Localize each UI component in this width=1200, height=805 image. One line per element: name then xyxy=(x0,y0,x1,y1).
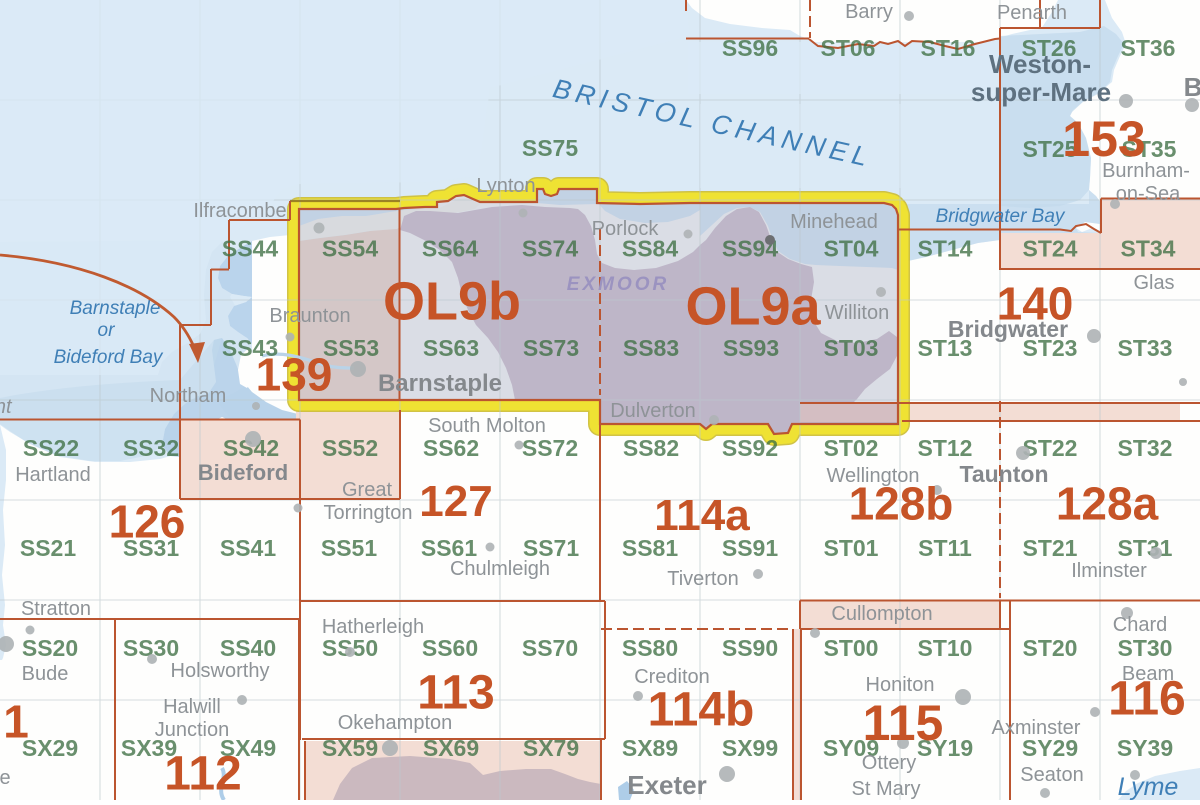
svg-text:Dulverton: Dulverton xyxy=(610,400,696,422)
svg-text:South Molton: South Molton xyxy=(428,415,546,437)
svg-text:SX69: SX69 xyxy=(423,735,479,761)
svg-text:SS64: SS64 xyxy=(422,236,478,262)
svg-text:ST24: ST24 xyxy=(1023,236,1078,262)
svg-text:140: 140 xyxy=(997,278,1074,330)
svg-text:Exeter: Exeter xyxy=(627,770,707,800)
svg-text:SS54: SS54 xyxy=(322,236,378,262)
svg-text:Torrington: Torrington xyxy=(324,502,413,524)
svg-text:SX99: SX99 xyxy=(722,735,778,761)
svg-text:Honiton: Honiton xyxy=(866,674,935,696)
svg-text:SY39: SY39 xyxy=(1117,735,1173,761)
svg-text:SS32: SS32 xyxy=(123,435,179,461)
svg-text:Bideford Bay: Bideford Bay xyxy=(54,347,164,368)
svg-text:Barry: Barry xyxy=(845,1,893,23)
svg-text:SS82: SS82 xyxy=(623,435,679,461)
svg-text:127: 127 xyxy=(419,477,492,526)
svg-text:ST33: ST33 xyxy=(1118,335,1173,361)
svg-text:Penarth: Penarth xyxy=(997,2,1067,24)
svg-text:114a: 114a xyxy=(654,491,750,540)
svg-text:Ottery: Ottery xyxy=(862,752,916,774)
svg-text:SX29: SX29 xyxy=(22,735,78,761)
svg-text:or: or xyxy=(98,320,116,341)
svg-text:SS41: SS41 xyxy=(220,535,276,561)
svg-text:Great: Great xyxy=(342,479,392,501)
svg-text:112: 112 xyxy=(164,747,241,800)
svg-text:ST31: ST31 xyxy=(1118,535,1173,561)
svg-text:Seaton: Seaton xyxy=(1020,764,1083,786)
svg-text:Axminster: Axminster xyxy=(992,717,1081,739)
svg-text:super-Mare: super-Mare xyxy=(971,77,1111,107)
svg-text:Porlock: Porlock xyxy=(592,218,660,240)
svg-text:OL9a: OL9a xyxy=(685,276,821,336)
svg-text:SS73: SS73 xyxy=(523,335,579,361)
svg-text:Holsworthy: Holsworthy xyxy=(171,660,270,682)
svg-text:SS83: SS83 xyxy=(623,335,679,361)
svg-text:SS60: SS60 xyxy=(422,635,478,661)
svg-text:B: B xyxy=(1184,72,1200,102)
svg-text:SS52: SS52 xyxy=(322,435,378,461)
svg-text:SS96: SS96 xyxy=(722,35,778,61)
svg-text:128b: 128b xyxy=(849,478,954,530)
svg-text:Hatherleigh: Hatherleigh xyxy=(322,616,424,638)
svg-text:Glas: Glas xyxy=(1133,272,1174,294)
svg-text:int: int xyxy=(0,396,13,418)
svg-text:116: 116 xyxy=(1108,672,1185,725)
svg-text:Ilminster: Ilminster xyxy=(1071,560,1147,582)
svg-text:Bideford: Bideford xyxy=(198,460,288,485)
svg-text:Braunton: Braunton xyxy=(269,305,350,327)
svg-text:ST32: ST32 xyxy=(1118,435,1173,461)
svg-text:SS63: SS63 xyxy=(423,335,479,361)
svg-text:SS22: SS22 xyxy=(23,435,79,461)
svg-text:126: 126 xyxy=(109,496,186,548)
svg-text:Junction: Junction xyxy=(155,719,230,741)
svg-text:EXMOOR: EXMOOR xyxy=(567,274,669,295)
svg-text:ST12: ST12 xyxy=(918,435,973,461)
svg-text:113: 113 xyxy=(417,666,494,719)
svg-text:Halwill: Halwill xyxy=(163,696,221,718)
svg-text:ST20: ST20 xyxy=(1023,635,1078,661)
svg-text:Northam: Northam xyxy=(150,385,227,407)
svg-text:Barnstaple: Barnstaple xyxy=(70,298,161,319)
svg-text:ST22: ST22 xyxy=(1023,435,1078,461)
svg-text:ST04: ST04 xyxy=(824,236,879,262)
svg-text:tle: tle xyxy=(0,767,11,789)
svg-text:Hartland: Hartland xyxy=(15,464,91,486)
svg-text:ST34: ST34 xyxy=(1121,236,1176,262)
svg-text:ST10: ST10 xyxy=(918,635,973,661)
svg-text:SS90: SS90 xyxy=(722,635,778,661)
svg-text:SS44: SS44 xyxy=(222,236,278,262)
svg-text:SS62: SS62 xyxy=(423,435,479,461)
svg-text:OL9b: OL9b xyxy=(383,271,521,331)
svg-text:Lynton: Lynton xyxy=(476,175,535,197)
svg-text:SS20: SS20 xyxy=(22,635,78,661)
svg-text:SS70: SS70 xyxy=(522,635,578,661)
svg-text:SX89: SX89 xyxy=(622,735,678,761)
svg-text:Ilfracombe: Ilfracombe xyxy=(193,200,286,222)
svg-text:Taunton: Taunton xyxy=(960,461,1049,487)
svg-text:SS72: SS72 xyxy=(522,435,578,461)
svg-text:Weston-: Weston- xyxy=(989,49,1091,79)
svg-text:ST30: ST30 xyxy=(1118,635,1173,661)
svg-text:ST16: ST16 xyxy=(921,35,976,61)
svg-text:Cullompton: Cullompton xyxy=(831,603,932,625)
svg-text:SS51: SS51 xyxy=(321,535,377,561)
svg-text:SS74: SS74 xyxy=(522,236,578,262)
svg-text:SS80: SS80 xyxy=(622,635,678,661)
svg-text:on-Sea: on-Sea xyxy=(1116,183,1181,205)
svg-text:Bude: Bude xyxy=(22,663,69,685)
svg-text:153: 153 xyxy=(1062,111,1145,167)
svg-text:ST11: ST11 xyxy=(918,535,972,561)
svg-text:SS21: SS21 xyxy=(20,535,76,561)
svg-text:Williton: Williton xyxy=(825,302,889,324)
svg-text:1: 1 xyxy=(3,696,29,748)
svg-text:ST02: ST02 xyxy=(824,435,879,461)
svg-text:SX59: SX59 xyxy=(322,735,378,761)
svg-text:Tiverton: Tiverton xyxy=(667,568,739,590)
svg-text:Barnstaple: Barnstaple xyxy=(378,370,502,397)
svg-text:ST36: ST36 xyxy=(1121,35,1176,61)
svg-text:ST21: ST21 xyxy=(1023,535,1078,561)
svg-text:115: 115 xyxy=(863,695,944,751)
svg-text:Chard: Chard xyxy=(1113,614,1167,636)
svg-text:SS92: SS92 xyxy=(722,435,778,461)
svg-text:ST03: ST03 xyxy=(824,335,879,361)
svg-text:Minehead: Minehead xyxy=(790,211,878,233)
svg-text:SS40: SS40 xyxy=(220,635,276,661)
svg-text:St Mary: St Mary xyxy=(852,778,921,800)
svg-text:ST14: ST14 xyxy=(918,236,973,262)
svg-text:SS75: SS75 xyxy=(522,135,578,161)
svg-text:128a: 128a xyxy=(1056,478,1159,530)
svg-text:Bridgwater Bay: Bridgwater Bay xyxy=(936,206,1066,227)
svg-text:ST00: ST00 xyxy=(824,635,879,661)
svg-text:ST06: ST06 xyxy=(821,35,876,61)
svg-text:Stratton: Stratton xyxy=(21,598,91,620)
svg-text:ST01: ST01 xyxy=(824,535,879,561)
svg-text:114b: 114b xyxy=(648,683,755,736)
svg-text:Lyme: Lyme xyxy=(1118,773,1179,800)
svg-text:139: 139 xyxy=(256,349,333,401)
svg-text:Chulmleigh: Chulmleigh xyxy=(450,558,550,580)
svg-text:SS93: SS93 xyxy=(723,335,779,361)
svg-text:SX79: SX79 xyxy=(523,735,579,761)
